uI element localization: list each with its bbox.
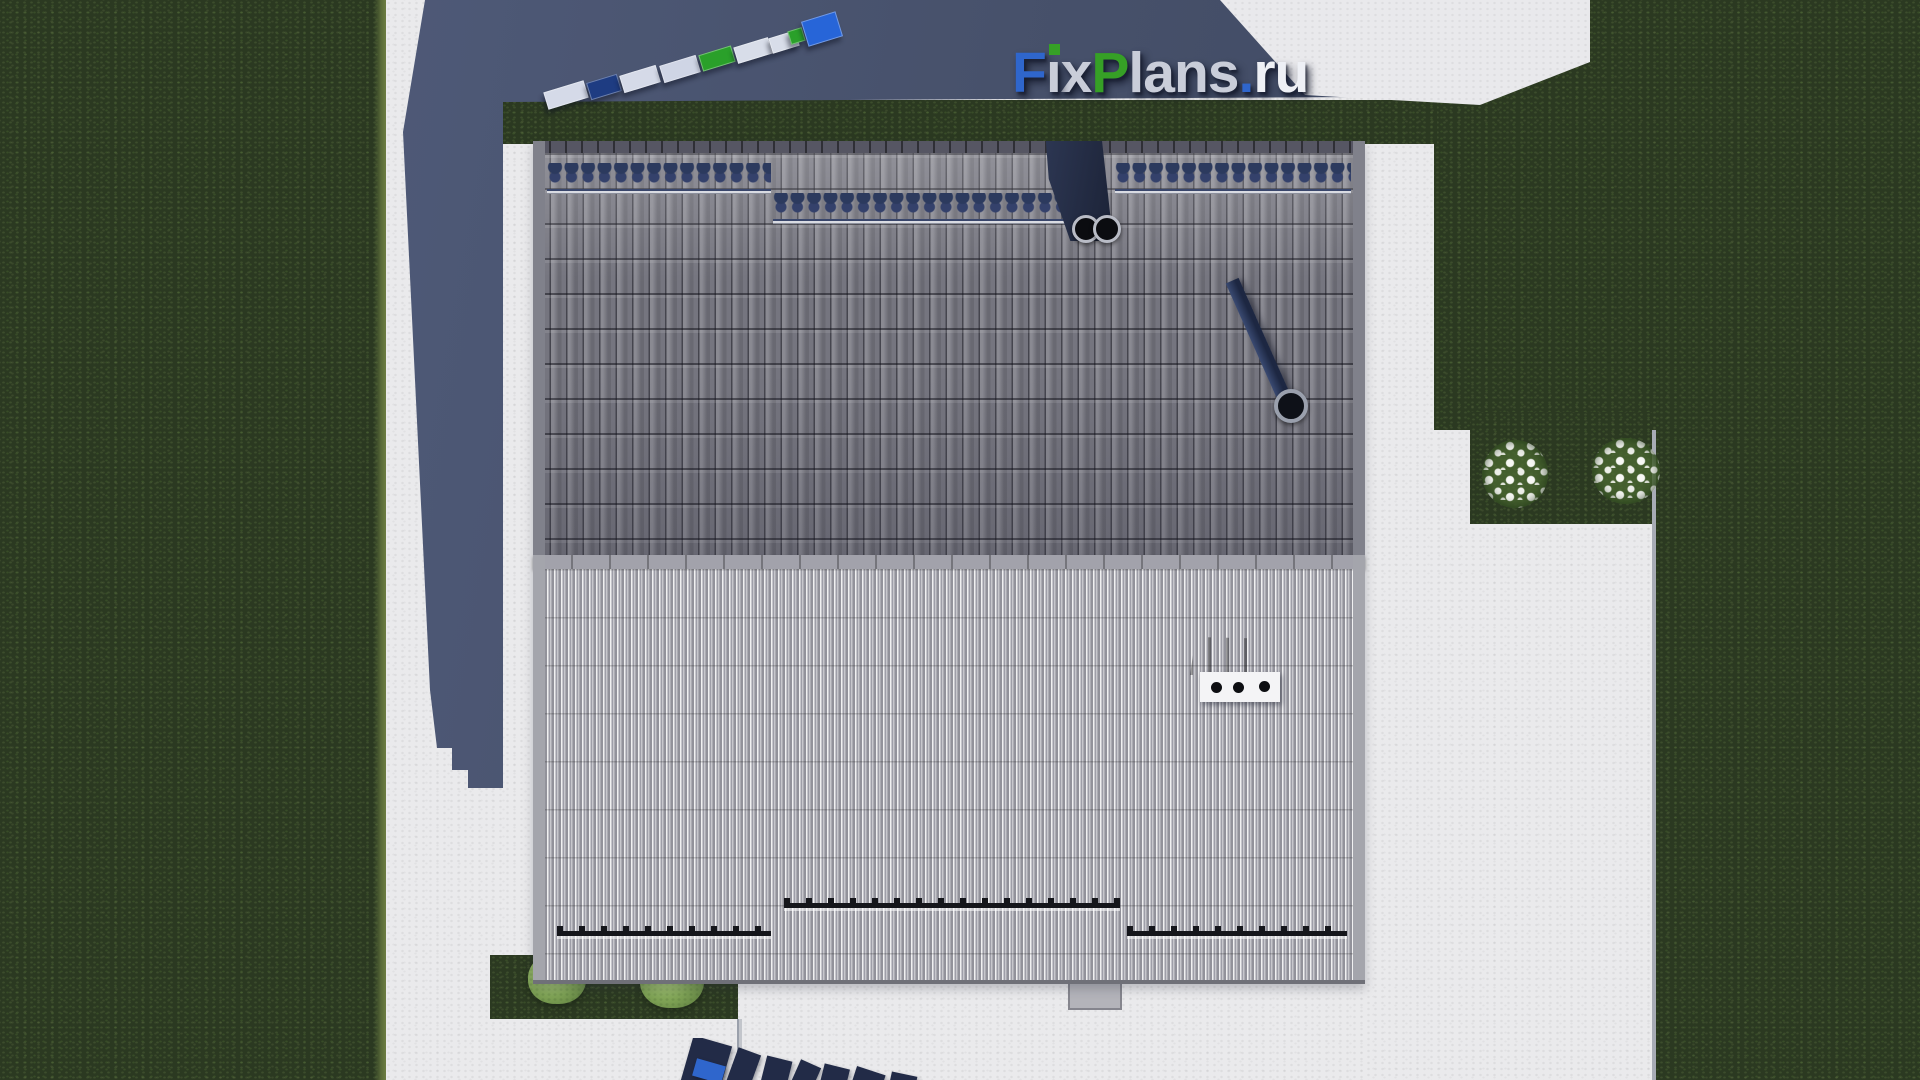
logo-letter-p: P [1091, 40, 1128, 106]
white-flower-bush [1592, 438, 1660, 504]
snow-guard-tile-row [1115, 163, 1351, 189]
vent-outlet-dot [1233, 682, 1244, 693]
roof-edge-left [533, 141, 545, 980]
white-flower-bush [1482, 440, 1548, 508]
roof-ridge-cap-top [533, 141, 1365, 153]
vent-outlet-dot [1211, 682, 1222, 693]
snow-guard-rail [1127, 931, 1347, 936]
snow-guard-rail [784, 903, 1120, 908]
lawn-strip-above-house [497, 100, 1437, 144]
lawn-left-edge [374, 0, 386, 1080]
chimney-flue-pipe [1093, 215, 1121, 243]
snow-guard-rail [557, 931, 771, 936]
cutoff-watermark [678, 1038, 938, 1080]
logo-letters-lans: lans [1128, 40, 1238, 106]
roof-drain-pipe-outlet [1274, 389, 1308, 423]
roof-edge-right [1353, 141, 1365, 980]
logo-letter-x: x [1061, 40, 1092, 106]
logo-letter-f: F [1012, 40, 1046, 106]
roof-ridge-middle [533, 555, 1365, 569]
house-roof [533, 141, 1365, 984]
walkway-right [1365, 430, 1656, 1080]
snow-guard-tile-row [547, 163, 771, 189]
lower-roof-slope [533, 569, 1365, 980]
logo-dot: . [1238, 40, 1253, 106]
roof-vent-hood [1190, 637, 1262, 675]
vent-outlet-dot [1259, 681, 1270, 692]
roof-vent-plate [1200, 672, 1280, 702]
watermark-shape [816, 1063, 850, 1080]
watermark-shape [848, 1066, 885, 1080]
watermark-shape [758, 1055, 793, 1080]
fixplans-logo: FıxPlans.ru [1012, 40, 1308, 106]
logo-letters-ru: ru [1253, 40, 1308, 106]
render-canvas: FıxPlans.ru [0, 0, 1920, 1080]
logo-letter-i: ı [1046, 40, 1061, 106]
watermark-shape [889, 1071, 918, 1080]
lawn-left [0, 0, 386, 1080]
logo-letter-i-dot [1049, 44, 1060, 55]
